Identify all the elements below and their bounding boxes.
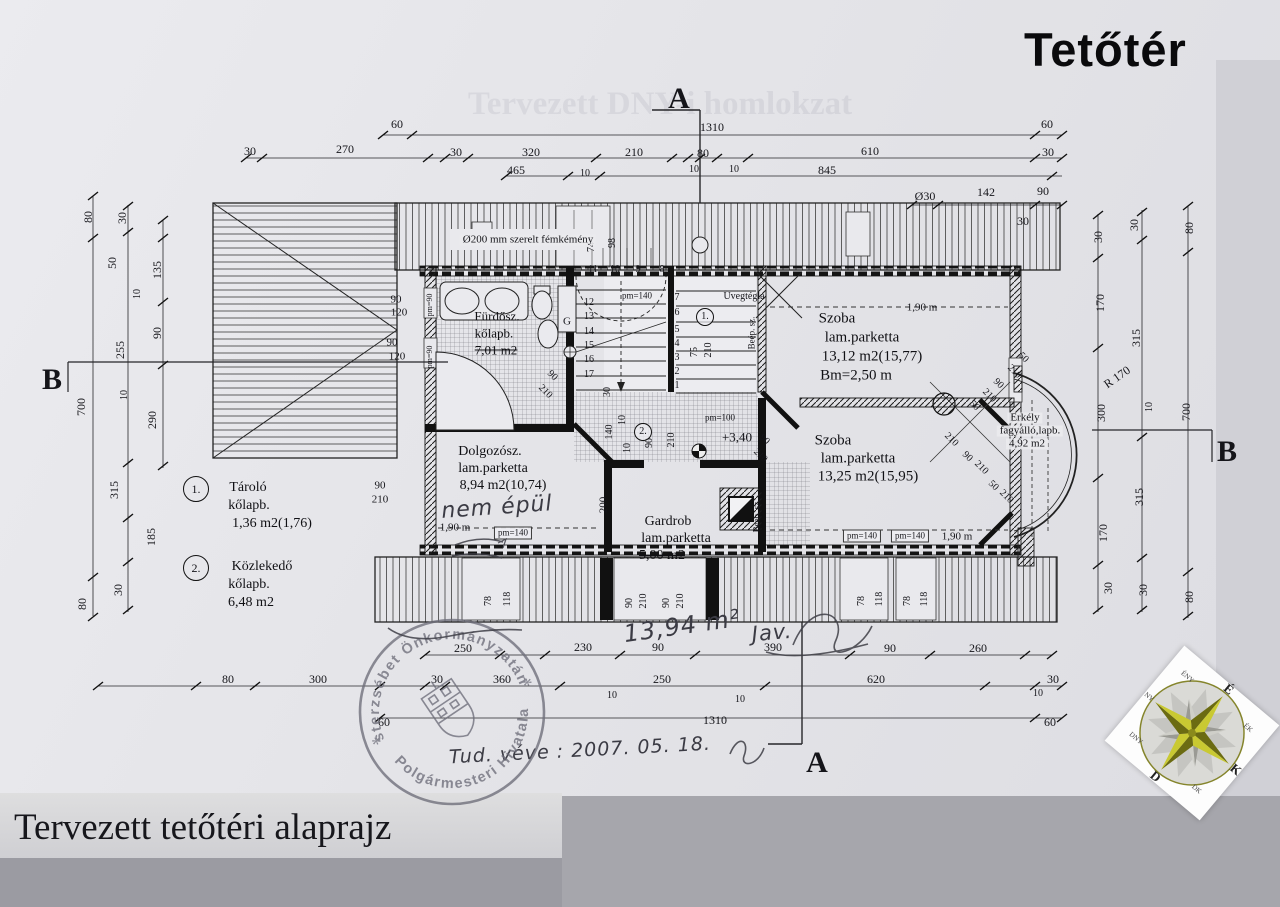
- dim-label: 10: [607, 691, 617, 701]
- dim-label: 78: [857, 596, 867, 606]
- dim-label: lam.parketta: [458, 462, 528, 476]
- dim-label: 6: [675, 308, 680, 318]
- dim-label: 17: [584, 370, 594, 380]
- dim-label: 75: [690, 347, 700, 357]
- dim-label: 255: [114, 341, 126, 359]
- dim-label: 60: [1044, 716, 1056, 728]
- dim-label: 210: [704, 343, 714, 358]
- dim-label: R 170: [1102, 364, 1133, 390]
- dim-label: 30: [1102, 582, 1114, 594]
- dim-label: 12: [584, 298, 594, 308]
- dim-label: 10: [735, 695, 745, 705]
- room-label-szoba-2: Szoba: [815, 434, 852, 449]
- dim-label: kőlapb.: [475, 327, 514, 340]
- dim-label: 135: [151, 261, 163, 279]
- dim-label: 700: [1180, 403, 1192, 421]
- dim-label: 210: [1005, 363, 1023, 381]
- dim-label: 8,94 m2(10,74): [460, 479, 547, 493]
- dim-label: 210: [972, 459, 990, 477]
- dim-label: Beép. sz.: [753, 500, 762, 533]
- dim-label: 210: [667, 433, 677, 448]
- drawing-caption: Tervezett tetőtéri alaprajz: [14, 806, 391, 849]
- dim-label: 1,90 m: [942, 532, 973, 543]
- room-label-szoba-1: Szoba: [819, 312, 856, 327]
- room-label-furdoszoba: Fürdősz.: [474, 310, 519, 323]
- dim-label: 90: [662, 598, 672, 608]
- dim-label: 315: [1130, 329, 1142, 347]
- section-marker-b-right: B: [1217, 437, 1237, 467]
- dim-label: 30: [603, 387, 613, 397]
- dim-label: 30: [1017, 215, 1029, 227]
- dim-label: 90: [625, 598, 635, 608]
- dim-label: 1,90 m: [907, 303, 938, 314]
- dim-label: 300: [309, 673, 327, 685]
- dim-label: 120: [389, 352, 406, 363]
- dim-label: 16: [584, 355, 594, 365]
- dim-label: 50: [986, 479, 1000, 493]
- dim-label: 60: [378, 716, 390, 728]
- dim-label: pm=140: [494, 527, 532, 540]
- dim-label: 170: [1097, 524, 1109, 542]
- dim-label: 210: [536, 383, 554, 401]
- dim-label: 1.: [696, 308, 714, 326]
- dim-label: 30: [1137, 584, 1149, 596]
- dim-label: 14: [584, 327, 594, 337]
- dim-label: 250: [454, 642, 472, 654]
- dim-label: 360: [493, 673, 511, 685]
- label-layer: 6013106030270303202108061030101046510845…: [0, 0, 1280, 907]
- legend-num-1: 1.: [183, 476, 209, 502]
- dim-label: 4: [675, 339, 680, 349]
- dim-label: 30: [1047, 673, 1059, 685]
- dim-label: 98: [608, 238, 618, 248]
- dim-label: Ø30: [915, 190, 936, 202]
- dim-label: 620: [867, 673, 885, 685]
- dim-label: Beép. sz.: [748, 317, 757, 350]
- room-label-gardrob: Gardrob: [645, 515, 692, 529]
- dim-label: 1310: [700, 121, 724, 133]
- dim-label: 90: [387, 338, 398, 349]
- dim-label: 320: [522, 146, 540, 158]
- dim-label: 1: [675, 381, 680, 391]
- dim-label: 78: [903, 596, 913, 606]
- dim-label: 118: [920, 592, 930, 607]
- level-mark: +3,40: [722, 431, 752, 444]
- dim-label: 142: [977, 186, 995, 198]
- dim-label: pm=140: [843, 530, 881, 543]
- dim-label: 1,36 m2(1,76): [232, 517, 312, 531]
- handwritten-date: Tud. véve : 2007. 05. 18.: [449, 735, 712, 768]
- dim-label: 210: [980, 387, 998, 405]
- dim-label: 30: [1092, 231, 1104, 243]
- dim-label: 60: [391, 118, 403, 130]
- dim-label: lam.parketta: [641, 532, 711, 546]
- dim-label: 210: [751, 447, 769, 465]
- page-title: Tetőtér: [1024, 22, 1187, 77]
- handwritten-note: nem épül: [441, 493, 554, 523]
- dim-label: 30: [1042, 146, 1054, 158]
- dim-label: 10: [580, 169, 590, 179]
- room-label-erkely: Erkély: [1007, 413, 1042, 424]
- dim-label: 30: [244, 145, 256, 157]
- dim-label: 7: [675, 293, 680, 303]
- dim-label: 50: [967, 399, 981, 413]
- dim-label: 13,12 m2(15,77): [822, 350, 922, 365]
- dim-label: G: [563, 317, 571, 328]
- dim-label: 5: [675, 325, 680, 335]
- dim-label: 200: [599, 497, 610, 514]
- dim-label: 210: [676, 594, 686, 609]
- legend-label-tarolo: Tároló: [229, 481, 266, 495]
- dim-label: 60: [1041, 118, 1053, 130]
- room-label-dolgozoszoba: Dolgozósz.: [458, 445, 521, 459]
- dim-label: 315: [1133, 488, 1145, 506]
- dim-label: 170: [1094, 294, 1106, 312]
- dim-label: lam.parketta: [821, 452, 896, 467]
- dim-label: fagyálló,lapb.: [997, 426, 1063, 437]
- dim-label: pm=90: [426, 346, 434, 369]
- dim-label: kőlapb.: [228, 499, 270, 513]
- dim-label: 10: [133, 289, 143, 299]
- dim-label: 845: [818, 164, 836, 176]
- dim-label: 10: [610, 265, 620, 275]
- handwritten-area: 13,94 m²: [622, 606, 742, 646]
- dim-label: 3: [675, 353, 680, 363]
- dim-label: 11: [588, 265, 598, 275]
- dim-label: lam.parketta: [825, 331, 900, 346]
- dim-label: 210: [372, 495, 389, 506]
- section-marker-b-left: B: [42, 365, 62, 395]
- legend-num-2: 2.: [183, 555, 209, 581]
- dim-label: 10: [618, 415, 628, 425]
- dim-label: 15: [584, 341, 594, 351]
- dim-label: 230: [574, 641, 592, 653]
- dim-label: 118: [875, 592, 885, 607]
- dim-label: 8: [660, 265, 665, 275]
- dim-label: 80: [697, 147, 709, 159]
- dim-label: 90: [391, 295, 402, 306]
- dim-label: pm=140: [622, 292, 652, 301]
- dim-label: 4,92 m2: [1006, 439, 1048, 450]
- dim-label: 30: [450, 146, 462, 158]
- dim-label: 90: [1037, 185, 1049, 197]
- dim-label: 300: [1095, 404, 1107, 422]
- section-marker-a-top: A: [668, 84, 690, 114]
- dim-label: 1,90 m: [440, 523, 471, 534]
- dim-label: pm=140: [891, 530, 929, 543]
- dim-label: 10: [1145, 402, 1155, 412]
- dim-label: 2.: [634, 423, 652, 441]
- dim-label: kőlapb.: [228, 578, 270, 592]
- dim-label: 6,48 m2: [228, 596, 274, 610]
- dim-label: 260: [969, 642, 987, 654]
- dim-label: 2: [675, 367, 680, 377]
- dim-label: 90: [545, 369, 559, 383]
- dim-label: 118: [503, 592, 513, 607]
- dim-label: 90: [151, 327, 163, 339]
- dim-label: Bm=2,50 m: [820, 369, 892, 384]
- glass-brick-note: Üvegtégla: [723, 292, 764, 302]
- dim-label: 315: [108, 481, 120, 499]
- dim-label: 90: [960, 450, 974, 464]
- dim-label: 185: [145, 528, 157, 546]
- dim-label: 7,01 m2: [475, 344, 518, 357]
- dim-label: pm=90: [426, 294, 434, 317]
- dim-label: 210: [625, 146, 643, 158]
- handwritten-signature: Jav.: [751, 621, 793, 645]
- dim-label: 210: [639, 594, 649, 609]
- dim-label: 120: [391, 308, 408, 319]
- dim-label: 10: [689, 165, 699, 175]
- dim-label: 10: [623, 443, 633, 453]
- dim-label: 10: [729, 165, 739, 175]
- dim-label: 610: [861, 145, 879, 157]
- dim-label: 9: [636, 265, 641, 275]
- dim-label: 30: [112, 584, 124, 596]
- dim-label: 13: [584, 312, 594, 322]
- dim-label: 700: [75, 398, 87, 416]
- dim-label: 78: [484, 596, 494, 606]
- chimney-note: Ø200 mm szerelt fémkémény: [460, 235, 596, 246]
- dim-label: 50: [106, 257, 118, 269]
- dim-label: 30: [116, 212, 128, 224]
- dim-label: 80: [222, 673, 234, 685]
- dim-label: 30: [1128, 219, 1140, 231]
- dim-label: 90: [884, 642, 896, 654]
- dim-label: 10: [120, 390, 130, 400]
- dim-label: 10: [1033, 689, 1043, 699]
- section-marker-a-bottom: A: [806, 748, 828, 778]
- legend-label-kozlekedo: Közlekedő: [232, 560, 293, 574]
- dim-label: 1310: [703, 714, 727, 726]
- scanned-floor-plan-page: Tervezett DNY-i homlokzat: [0, 0, 1280, 907]
- dim-label: 80: [82, 211, 94, 223]
- dim-label: 80: [1183, 591, 1195, 603]
- dim-label: 290: [146, 411, 158, 429]
- dim-label: 90: [757, 433, 771, 447]
- dim-label: 210: [997, 488, 1015, 506]
- dim-label: 140: [605, 425, 615, 440]
- dim-label: 210: [942, 431, 960, 449]
- dim-label: 80: [76, 598, 88, 610]
- dim-label: 13,25 m2(15,95): [818, 470, 918, 485]
- dim-label: 250: [653, 673, 671, 685]
- dim-label: 50: [1016, 351, 1030, 365]
- dim-label: 80: [1183, 222, 1195, 234]
- dim-label: 5,00 m2: [639, 549, 685, 563]
- dim-label: 30: [431, 673, 443, 685]
- dim-label: 90: [375, 481, 386, 492]
- dim-label: 465: [507, 164, 525, 176]
- dim-label: 90: [991, 377, 1005, 391]
- dim-label: pm=100: [705, 414, 735, 423]
- dim-label: 270: [336, 143, 354, 155]
